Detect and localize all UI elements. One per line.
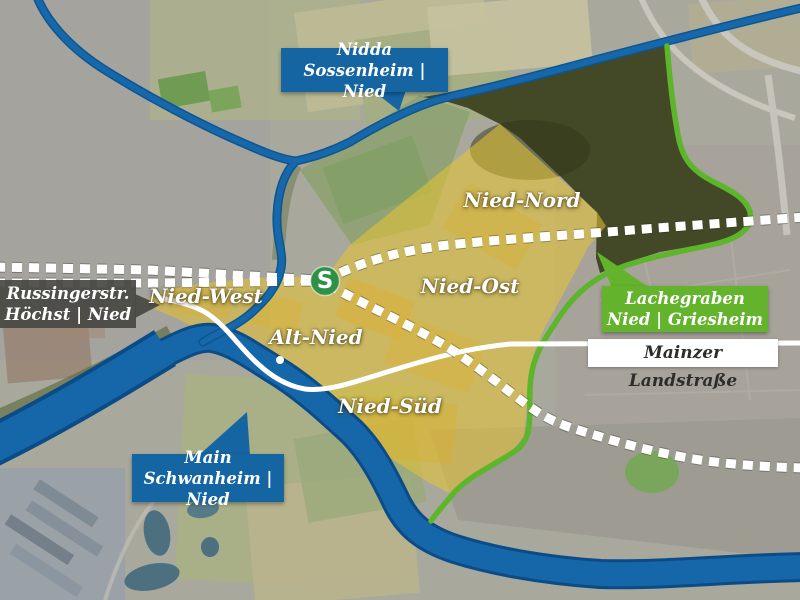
district-label-nied-ost: Nied-Ost xyxy=(395,274,545,298)
district-label-nied-nord: Nied-Nord xyxy=(447,188,597,212)
russingerstrasse-callout-line1: Russingerstr. xyxy=(0,283,136,304)
russingerstrasse-callout: Russingerstr. Höchst | Nied xyxy=(0,280,136,328)
russingerstrasse-callout-line2: Höchst | Nied xyxy=(0,304,136,325)
district-label-nied-west: Nied-West xyxy=(131,284,281,308)
main-callout-line2: Schwanheim | Nied xyxy=(132,468,284,510)
district-label-alt-nied: Alt-Nied xyxy=(241,325,391,349)
sbahn-station-letter: S xyxy=(310,266,340,296)
lachegraben-callout-line1: Lachegraben xyxy=(602,288,768,309)
mainzer-landstrasse-label: Mainzer Landstraße xyxy=(588,339,778,367)
main-callout-line1: Main xyxy=(132,447,284,468)
nidda-callout-line2: Sossenheim | Nied xyxy=(281,60,448,102)
district-label-nied-sued: Nied-Süd xyxy=(315,394,465,418)
map-canvas: Nidda Sossenheim | Nied Russingerstr. Hö… xyxy=(0,0,800,600)
lachegraben-callout-line2: Nied | Griesheim xyxy=(602,309,768,330)
nidda-callout-line1: Nidda xyxy=(281,39,448,60)
lachegraben-callout: Lachegraben Nied | Griesheim xyxy=(602,286,768,332)
nidda-callout: Nidda Sossenheim | Nied xyxy=(281,48,448,92)
main-callout: Main Schwanheim | Nied xyxy=(132,454,284,502)
alt-nied-marker xyxy=(276,356,284,364)
